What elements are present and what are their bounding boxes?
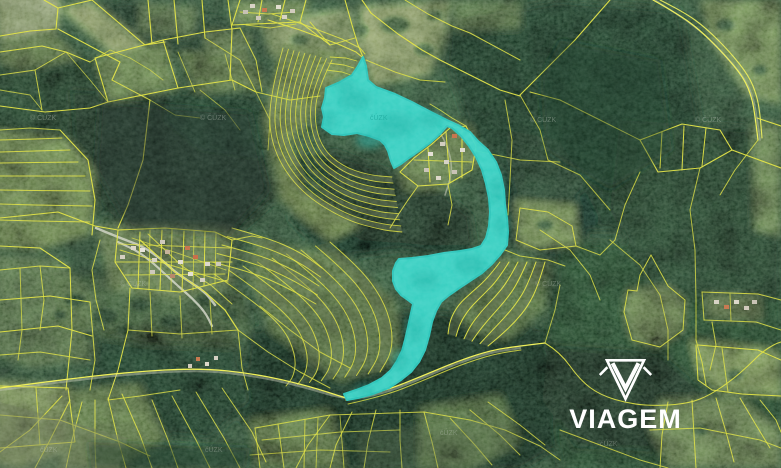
svg-text:© ČÚZK: © ČÚZK <box>200 113 226 122</box>
svg-text:čÚZK: čÚZK <box>600 439 618 448</box>
svg-text:čÚZK: čÚZK <box>40 445 58 454</box>
svg-text:© ČÚZK: © ČÚZK <box>530 115 556 124</box>
svg-text:čÚZK: čÚZK <box>370 113 388 122</box>
svg-text:© ČÚZK: © ČÚZK <box>535 279 561 288</box>
svg-text:© ČÚZK: © ČÚZK <box>30 113 56 122</box>
svg-text:VIAGEM: VIAGEM <box>569 404 682 434</box>
svg-text:© ČÚZK: © ČÚZK <box>120 279 146 288</box>
svg-text:čÚZK: čÚZK <box>205 445 223 454</box>
svg-text:© ČÚZK: © ČÚZK <box>695 115 721 124</box>
svg-text:čÚZK: čÚZK <box>440 428 458 437</box>
